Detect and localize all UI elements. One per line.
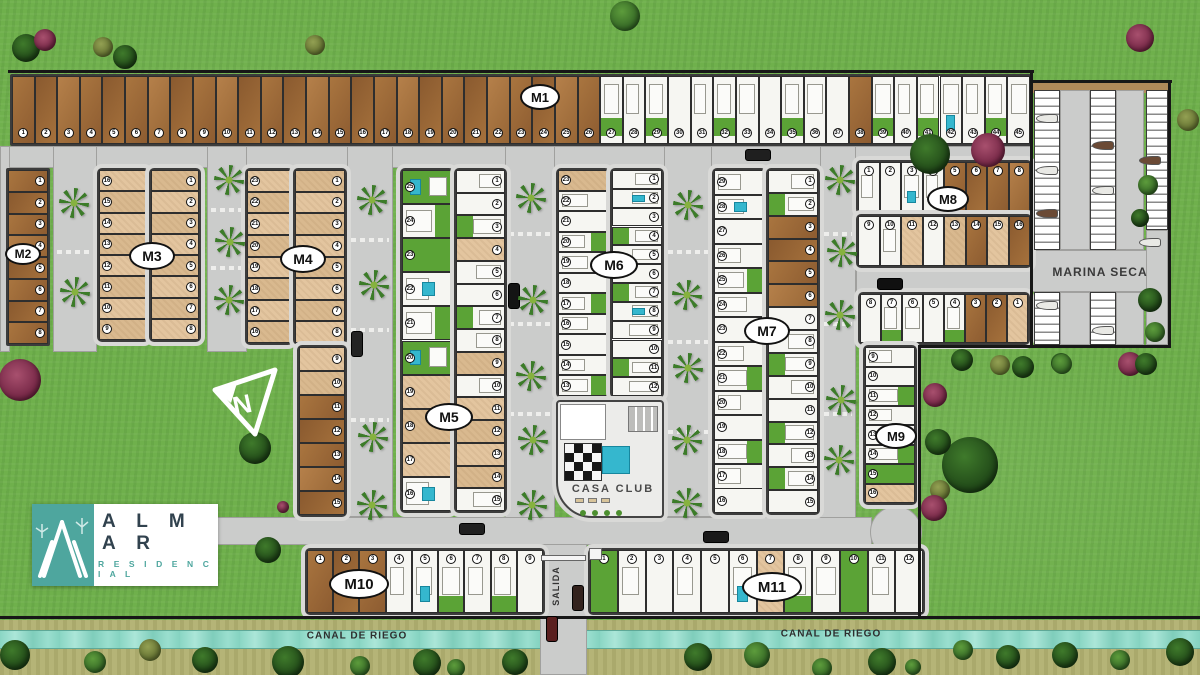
lot: 20: [558, 232, 608, 253]
lot-number: 5: [929, 298, 939, 308]
lot-number: 5: [35, 263, 45, 273]
lot-number: 22: [717, 349, 727, 359]
lot-number: 16: [561, 319, 571, 329]
lot-number: 29: [652, 128, 662, 138]
tree-icon: [0, 359, 41, 401]
lot: 23: [247, 170, 291, 192]
lot: 6: [8, 279, 48, 301]
boundary-line: [1032, 80, 1172, 83]
garden-yard: [769, 423, 785, 444]
lot: 9: [858, 216, 880, 266]
block-strip-m6R: 123456789101112: [610, 168, 664, 398]
lot-number: 8: [805, 336, 815, 346]
house-footprint: [861, 175, 873, 197]
lot: 29: [645, 76, 668, 144]
logo-subtitle: R E S I D E N C I A L: [98, 559, 218, 579]
palm-tree-icon: [672, 488, 702, 518]
lot: 11: [768, 399, 818, 422]
lot: 22: [402, 272, 452, 306]
lot: 9: [456, 352, 505, 375]
lot: 16: [402, 477, 452, 511]
lot: 1: [858, 162, 880, 212]
house-footprint: [717, 84, 731, 114]
lot: 7: [8, 301, 48, 323]
lot-number: 19: [250, 262, 260, 272]
lot-number: 2: [341, 554, 351, 564]
lot-number: 6: [738, 554, 748, 564]
lot-number: 9: [492, 358, 502, 368]
lot-number: 29: [717, 177, 727, 187]
lot-number: 1: [332, 176, 342, 186]
lot: 9: [865, 347, 915, 367]
lot-number: 9: [821, 554, 831, 564]
lot-number: 8: [649, 306, 659, 316]
lot: 1: [295, 170, 345, 192]
tree-icon: [502, 649, 528, 675]
block-label-m9: M9: [875, 423, 917, 449]
palm-tree-icon: [825, 300, 855, 330]
canal-de-riego-label-1: CANAL DE RIEGO: [307, 631, 408, 642]
lot: 29: [714, 170, 764, 195]
lot-number: 23: [405, 250, 415, 260]
lot-number: 3: [35, 219, 45, 229]
tree-icon: [951, 349, 973, 371]
boat-icon: [1036, 166, 1058, 175]
lot-number: 14: [312, 128, 322, 138]
lot-number: 15: [993, 220, 1003, 230]
block-label-m4: M4: [280, 245, 326, 273]
lot: 8: [491, 550, 517, 613]
lot-number: 7: [993, 166, 1003, 176]
lot: 22: [558, 191, 608, 212]
lot: 1: [456, 170, 505, 193]
lot: 7: [295, 300, 345, 322]
lot-number: 10: [332, 378, 342, 388]
lot-number: 36: [810, 128, 820, 138]
plant-icon: [580, 510, 586, 516]
lot: 16: [714, 488, 764, 513]
tree-icon: [925, 429, 951, 455]
boundary-line: [8, 70, 1034, 73]
crosswalk-marking: [509, 412, 551, 416]
lot: 9: [193, 76, 216, 144]
lot: 24: [402, 204, 452, 238]
lot: 14: [306, 76, 329, 144]
lot: 12: [865, 406, 915, 426]
lot: 7: [464, 550, 490, 613]
lot: 11: [865, 386, 915, 406]
tree-icon: [255, 537, 281, 563]
crosswalk-marking: [509, 322, 551, 326]
lot-number: 10: [492, 381, 502, 391]
lot: 17: [558, 293, 608, 314]
lot-number: 8: [332, 327, 342, 337]
lot-number: 10: [102, 303, 112, 313]
lot-number: 7: [765, 554, 775, 564]
house-footprint: [468, 567, 483, 595]
lot-number: 20: [448, 128, 458, 138]
lot-number: 28: [629, 128, 639, 138]
lot: 4: [386, 550, 412, 613]
lot: 13: [768, 444, 818, 467]
lot-number: 1: [492, 176, 502, 186]
lot: 4: [456, 238, 505, 261]
lot-number: 7: [186, 303, 196, 313]
palm-tree-icon: [60, 277, 90, 307]
lot-number: 19: [425, 128, 435, 138]
lot-number: 1: [35, 176, 45, 186]
tree-icon: [277, 501, 289, 513]
lot: 26: [714, 244, 764, 269]
lot-number: 28: [717, 202, 727, 212]
lot: 3: [57, 76, 80, 144]
lot: 10: [299, 371, 345, 395]
house-footprint: [988, 84, 1002, 114]
garden-yard: [591, 233, 607, 252]
lot: 6: [438, 550, 464, 613]
swimming-pool: [734, 202, 746, 212]
lot: 6: [902, 294, 923, 343]
lot: 22: [247, 192, 291, 214]
lot-number: 12: [904, 554, 914, 564]
lot-number: 45: [1014, 128, 1024, 138]
lot-number: 18: [405, 421, 415, 431]
lot: 13: [558, 375, 608, 396]
palm-tree-icon: [215, 227, 245, 257]
lot-number: 11: [876, 554, 886, 564]
lot-number: 18: [403, 128, 413, 138]
lot: 15: [558, 334, 608, 355]
lot: 13: [944, 216, 966, 266]
lot: 12: [612, 377, 662, 396]
lot: 8: [612, 302, 662, 321]
boat-icon: [1036, 114, 1058, 123]
lot-number: 7: [332, 306, 342, 316]
tree-icon: [1131, 209, 1149, 227]
block-label-m10: M10: [329, 569, 389, 599]
car-icon: [546, 616, 558, 642]
lot-number: 4: [86, 128, 96, 138]
lot: 32: [713, 76, 736, 144]
house-footprint: [429, 347, 447, 366]
lot: 23: [402, 238, 452, 272]
lot: 13: [299, 443, 345, 467]
palm-tree-icon: [214, 285, 244, 315]
swimming-pool: [420, 586, 431, 602]
lot-number: 10: [885, 220, 895, 230]
lot: 9: [517, 550, 543, 613]
irrigation-canal-water: [0, 630, 1200, 649]
lot-number: 27: [606, 128, 616, 138]
lot-number: 5: [492, 267, 502, 277]
tree-icon: [1052, 642, 1078, 668]
lot-number: 11: [649, 363, 659, 373]
house-footprint: [875, 84, 891, 114]
lot-number: 8: [1014, 166, 1024, 176]
lot: 5: [412, 550, 438, 613]
tree-icon: [921, 495, 947, 521]
lot: 11: [901, 216, 923, 266]
lot-number: 13: [561, 381, 571, 391]
casa-club-parking: [628, 406, 658, 432]
crosswalk-marking: [57, 250, 93, 254]
lot-number: 18: [250, 284, 260, 294]
palm-tree-icon: [824, 445, 854, 475]
lot-number: 13: [332, 450, 342, 460]
crosswalk-marking: [211, 208, 243, 212]
garden-yard: [769, 194, 785, 215]
lot-number: 14: [332, 474, 342, 484]
house-footprint: [739, 84, 755, 114]
crosswalk-marking: [824, 232, 852, 236]
palm-tree-icon: [358, 422, 388, 452]
canal-de-riego-label-2: CANAL DE RIEGO: [781, 629, 882, 640]
lot-number: 5: [332, 262, 342, 272]
lot: 2: [768, 193, 818, 216]
lot-number: 13: [102, 239, 112, 249]
lot: 5: [701, 550, 729, 613]
lot-number: 5: [109, 128, 119, 138]
lot-number: 21: [405, 318, 415, 328]
lot: 15: [865, 464, 915, 484]
lot: 13: [283, 76, 306, 144]
lounger-icon: [575, 498, 584, 503]
lot-number: 20: [250, 241, 260, 251]
lot: 16: [247, 321, 291, 343]
lot-number: 4: [682, 554, 692, 564]
lot: 6: [768, 284, 818, 307]
lot: 42: [940, 76, 963, 144]
lot: 38: [849, 76, 872, 144]
lot-number: 5: [805, 268, 815, 278]
lot-number: 7: [805, 314, 815, 324]
house-footprint: [622, 567, 640, 595]
house-footprint: [442, 567, 460, 595]
lot-number: 11: [245, 128, 255, 138]
lot-number: 15: [868, 469, 878, 479]
marina-aisle-road: [1060, 90, 1090, 250]
lot-number: 1: [315, 554, 325, 564]
garden-yard: [769, 468, 785, 489]
lot: 25: [555, 76, 578, 144]
lot-number: 8: [499, 554, 509, 564]
lot: 7: [456, 306, 505, 329]
lot-number: 11: [907, 220, 917, 230]
lot-number: 6: [971, 166, 981, 176]
lot-number: 12: [102, 261, 112, 271]
palm-tree-icon: [518, 285, 548, 315]
house-footprint: [883, 229, 896, 251]
lot-number: 17: [561, 299, 571, 309]
lot-number: 3: [654, 554, 664, 564]
lot: 2: [35, 76, 58, 144]
lot: 10: [880, 216, 902, 266]
lot-number: 2: [186, 197, 196, 207]
lot-number: 16: [868, 488, 878, 498]
house-footprint: [966, 84, 978, 114]
lot-number: 10: [649, 344, 659, 354]
lot: 27: [714, 219, 764, 244]
lot-number: 35: [787, 128, 797, 138]
lot-number: 15: [335, 128, 345, 138]
tree-icon: [113, 45, 137, 69]
lot: 22: [714, 342, 764, 367]
garden-yard: [945, 330, 964, 342]
lot-number: 8: [35, 328, 45, 338]
garden-yard: [613, 228, 629, 245]
lot: 5: [923, 294, 944, 343]
lot-number: 23: [516, 128, 526, 138]
crosswalk-marking: [351, 238, 389, 242]
compass-letter: N: [230, 388, 255, 421]
lot: 7: [987, 162, 1009, 212]
lot: 10: [456, 375, 505, 398]
garden-yard: [435, 307, 451, 339]
lot-number: 18: [717, 447, 727, 457]
lot-number: 9: [649, 325, 659, 335]
lot: 20: [402, 341, 452, 375]
garden-yard: [591, 376, 607, 395]
tree-icon: [139, 639, 161, 661]
crosswalk-marking: [211, 266, 243, 270]
lot-number: 5: [186, 261, 196, 271]
lot: 2: [8, 192, 48, 214]
boundary-line: [918, 345, 921, 616]
lot-number: 4: [332, 241, 342, 251]
lot: 17: [714, 464, 764, 489]
lot-number: 10: [222, 128, 232, 138]
lot: 4: [612, 227, 662, 246]
lot-number: 4: [186, 239, 196, 249]
palm-tree-icon: [59, 188, 89, 218]
lot-number: 6: [332, 284, 342, 294]
lot: 2: [612, 189, 662, 208]
house-footprint: [884, 307, 897, 329]
lot-number: 22: [493, 128, 503, 138]
lot-number: 12: [649, 382, 659, 392]
boundary-line: [0, 616, 1200, 619]
lot: 10: [768, 376, 818, 399]
palm-tree-icon: [826, 385, 856, 415]
north-arrow-icon: N: [205, 360, 283, 440]
lot-number: 10: [868, 371, 878, 381]
lot-number: 19: [561, 257, 571, 267]
lot: 33: [736, 76, 759, 144]
lot: 2: [618, 550, 646, 613]
lot: 8: [456, 329, 505, 352]
palm-tree-icon: [357, 490, 387, 520]
house-footprint: [816, 567, 836, 595]
lot: 25: [714, 268, 764, 293]
swimming-pool: [907, 191, 916, 203]
lot-number: 20: [405, 353, 415, 363]
lot: 9: [99, 319, 147, 340]
marina-seca-label: MARINA SECA: [1052, 265, 1147, 279]
lot: 4: [80, 76, 103, 144]
lot-number: 8: [492, 335, 502, 345]
lot: 3: [8, 214, 48, 236]
tree-icon: [305, 35, 325, 55]
lot-number: 13: [805, 451, 815, 461]
lot-number: 4: [950, 298, 960, 308]
lot: 7: [881, 294, 902, 343]
lot: 39: [872, 76, 895, 144]
lot-number: 15: [561, 340, 571, 350]
lot-number: 21: [471, 128, 481, 138]
palm-tree-icon: [672, 425, 702, 455]
lot: 16: [865, 484, 915, 504]
lot: 8: [8, 322, 48, 344]
lot-number: 21: [561, 216, 571, 226]
block-strip-m5L: 25242322212019181716: [400, 168, 454, 513]
lot: 34: [759, 76, 782, 144]
lot: 8: [1009, 162, 1031, 212]
lot-number: 7: [887, 298, 897, 308]
lot: 40: [894, 76, 917, 144]
lot: 16: [558, 314, 608, 335]
lot: 31: [691, 76, 714, 144]
swimming-pool: [422, 282, 434, 296]
lot-number: 1: [1013, 298, 1023, 308]
lot: 18: [714, 440, 764, 465]
block-label-m8: M8: [927, 186, 969, 212]
lot: 19: [419, 76, 442, 144]
tree-icon: [990, 355, 1010, 375]
lot-number: 26: [717, 251, 727, 261]
palm-tree-icon: [214, 165, 244, 195]
tree-icon: [971, 133, 1005, 167]
lot: 23: [558, 170, 608, 191]
lot-number: 3: [332, 219, 342, 229]
tree-icon: [910, 134, 950, 174]
tree-icon: [1138, 288, 1162, 312]
lot-number: 16: [102, 176, 112, 186]
lot-number: 22: [405, 284, 415, 294]
house-footprint: [626, 84, 638, 114]
lot: 2: [880, 162, 902, 212]
lot-number: 1: [864, 166, 874, 176]
lot: 2: [295, 192, 345, 214]
car-icon: [703, 531, 729, 543]
palm-tree-icon: [357, 185, 387, 215]
lot: 11: [868, 550, 896, 613]
lot: 3: [965, 294, 986, 343]
swimming-pool: [422, 487, 434, 501]
lot-number: 21: [717, 373, 727, 383]
lot: 10: [612, 340, 662, 359]
lot: 21: [558, 211, 608, 232]
block-strip-m6L: 2322212019181716151413: [556, 168, 610, 398]
house-footprint: [390, 567, 405, 595]
house-footprint: [905, 307, 919, 329]
lot-number: 12: [868, 410, 878, 420]
lot-number: 42: [946, 128, 956, 138]
lot: 30: [668, 76, 691, 144]
tree-icon: [447, 659, 465, 675]
lot: 1: [612, 170, 662, 189]
lot-number: 24: [405, 216, 415, 226]
lot: 17: [402, 443, 452, 477]
lot-number: 4: [394, 554, 404, 564]
block-label-m7: M7: [744, 317, 790, 345]
lot: 15: [329, 76, 352, 144]
boat-icon: [1092, 186, 1114, 195]
garden-yard: [457, 307, 473, 328]
lot-number: 13: [950, 220, 960, 230]
lot-number: 6: [446, 554, 456, 564]
lot: 17: [247, 300, 291, 322]
lot-number: 6: [649, 269, 659, 279]
